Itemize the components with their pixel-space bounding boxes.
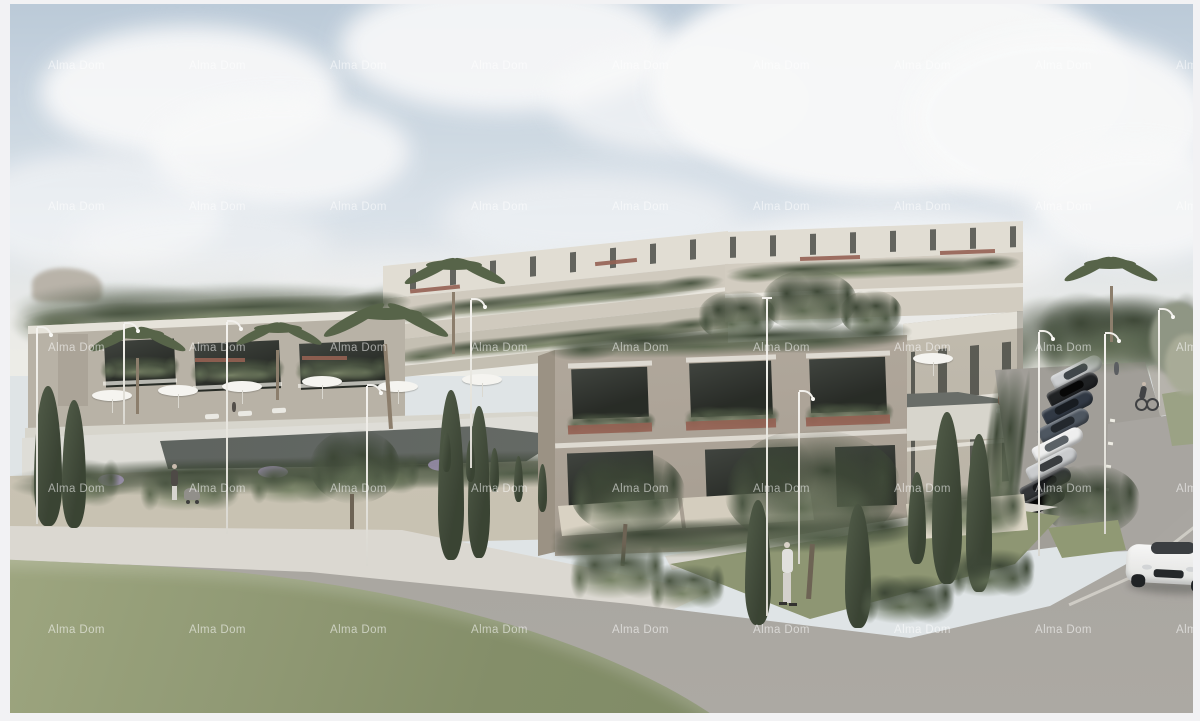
person-head: [784, 542, 790, 548]
palm-frond: [276, 319, 323, 348]
palm-tree: [240, 322, 320, 404]
bush: [950, 549, 1035, 597]
palm-frond: [321, 299, 387, 342]
cyclist: [1132, 382, 1158, 412]
scene: [10, 4, 1193, 713]
palm-frond: [1062, 253, 1113, 285]
bush: [860, 574, 955, 624]
planter-box: [195, 358, 245, 362]
palm-frond: [136, 323, 187, 355]
sun-lounger: [272, 408, 286, 414]
bicycle-wheel: [1146, 398, 1159, 411]
person-shoe: [779, 602, 787, 605]
car-grille: [1153, 569, 1183, 579]
person-with-stroller: [162, 462, 207, 522]
person-body: [171, 470, 178, 486]
palm-frond: [1108, 253, 1159, 285]
white-convertible-car: [1124, 532, 1193, 603]
person: [232, 402, 236, 412]
palm-tree: [408, 256, 503, 358]
person-head: [172, 464, 177, 469]
sun-lounger: [205, 414, 219, 420]
left-wing-tower: [58, 334, 88, 406]
palm-trunk: [452, 292, 455, 354]
stroller: [184, 488, 200, 500]
person-shoe: [789, 603, 797, 606]
architectural-rendering: Alma DomAlma DomAlma DomAlma DomAlma Dom…: [10, 4, 1193, 713]
stroller-wheel: [195, 500, 199, 504]
person-body: [782, 549, 793, 573]
pedestrian: [776, 542, 806, 620]
curb-marker: [1110, 419, 1115, 423]
stroller-wheel: [186, 500, 190, 504]
car-headlight: [1142, 564, 1152, 570]
palm-trunk: [383, 344, 393, 429]
person-legs: [172, 486, 177, 500]
rooftop-tree: [840, 290, 902, 336]
car-interior: [1151, 542, 1193, 554]
curb-marker: [1108, 442, 1113, 446]
sun-lounger: [238, 411, 252, 417]
pedestrian: [1114, 362, 1119, 375]
olive-tree-trunk: [350, 494, 354, 529]
palm-trunk: [136, 358, 139, 414]
bush: [650, 564, 725, 609]
palm-trunk: [276, 350, 279, 400]
car-wheel: [1131, 574, 1146, 588]
olive-tree-canopy: [570, 450, 685, 535]
palm-frond: [453, 254, 508, 288]
palm-tree: [96, 326, 186, 418]
person-legs: [783, 573, 791, 603]
olive-tree-canopy: [310, 429, 400, 504]
screenshot: Alma DomAlma DomAlma DomAlma DomAlma Dom…: [0, 0, 1200, 721]
